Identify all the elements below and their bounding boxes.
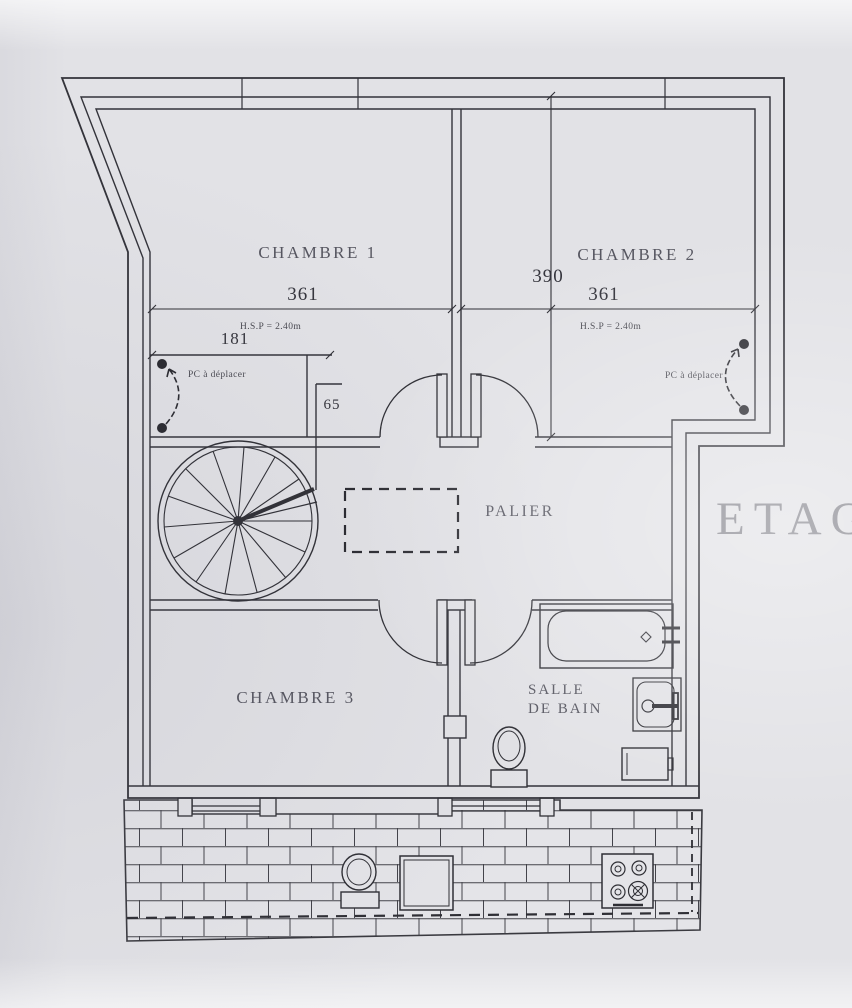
dimension-lines bbox=[148, 92, 759, 441]
stove-icon bbox=[602, 854, 653, 908]
dim-chambre1-width: 361 bbox=[273, 284, 333, 306]
floorplan-photo: CHAMBRE 1 CHAMBRE 2 CHAMBRE 3 PALIER SAL… bbox=[0, 0, 852, 1008]
radiator-icon bbox=[622, 748, 673, 780]
note-pc-chambre2: PC à déplacer bbox=[665, 371, 723, 381]
room-label-chambre2: CHAMBRE 2 bbox=[549, 245, 725, 265]
ground-floor-wc-icon bbox=[341, 854, 379, 908]
sdb-label-line1: SALLE bbox=[528, 681, 602, 700]
room-label-chambre3: CHAMBRE 3 bbox=[208, 688, 384, 708]
table-icon bbox=[400, 856, 453, 910]
page-title: ETAGE bbox=[716, 492, 852, 546]
toilet-icon bbox=[491, 727, 527, 787]
dim-closet-width: 181 bbox=[205, 329, 265, 349]
note-pc-chambre1: PC à déplacer bbox=[188, 370, 246, 380]
room-label-palier: PALIER bbox=[460, 503, 580, 521]
sdb-label-line2: DE BAIN bbox=[528, 700, 602, 719]
dim-wall-stub: 65 bbox=[312, 397, 352, 414]
stair-trap-opening bbox=[345, 489, 458, 552]
exterior-walls bbox=[62, 78, 784, 798]
washbasin-icon bbox=[633, 678, 681, 731]
dim-chambre2-width: 361 bbox=[574, 284, 634, 306]
bathtub-icon bbox=[540, 604, 680, 668]
room-label-chambre1: CHAMBRE 1 bbox=[230, 243, 406, 263]
spiral-staircase-icon bbox=[158, 441, 318, 601]
dim-chambre2-depth: 390 bbox=[518, 266, 578, 288]
note-hsp-chambre1: H.S.P = 2.40m bbox=[240, 322, 301, 332]
note-hsp-chambre2: H.S.P = 2.40m bbox=[580, 322, 641, 332]
room-label-salle-de-bain: SALLE DE BAIN bbox=[528, 681, 602, 719]
outlet-arrows bbox=[158, 340, 749, 433]
